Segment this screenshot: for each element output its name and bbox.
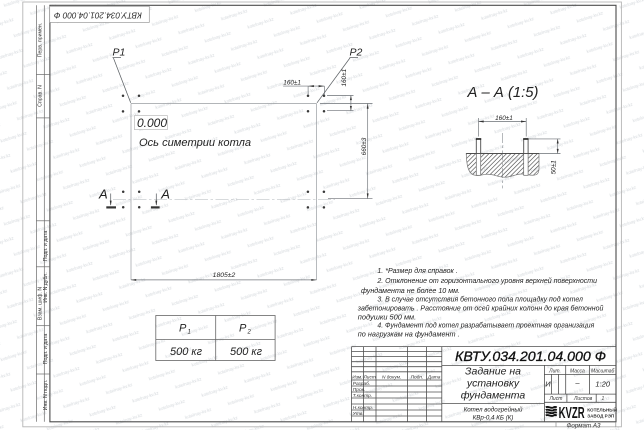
svg-text:1:20: 1:20 (595, 379, 610, 388)
svg-text:Т.контр.: Т.контр. (353, 393, 372, 399)
svg-text:1: 1 (602, 396, 605, 402)
svg-text:50±1: 50±1 (551, 160, 558, 175)
svg-text:Р: Р (179, 323, 187, 335)
svg-text:1. *Размер для справок .: 1. *Размер для справок . (377, 266, 457, 275)
svg-text:660±3: 660±3 (361, 137, 368, 155)
svg-text:0.000: 0.000 (137, 116, 167, 130)
svg-text:N докум.: N докум. (382, 374, 401, 380)
svg-text:И: И (545, 379, 551, 388)
svg-text:Лист: Лист (549, 396, 563, 402)
svg-text:Р1: Р1 (113, 47, 126, 59)
svg-text:КВр-0,4 КБ (К): КВр-0,4 КБ (К) (473, 415, 514, 422)
svg-text:ЗАВОД РЭП: ЗАВОД РЭП (587, 413, 614, 418)
svg-text:КВТУ.034.201.04.000 Ф: КВТУ.034.201.04.000 Ф (455, 349, 606, 364)
svg-text:500 кг: 500 кг (170, 346, 203, 358)
svg-text:KVZR: KVZR (559, 405, 585, 422)
svg-text:Лист: Лист (363, 374, 376, 380)
svg-text:Взам. шиф. N: Взам. шиф. N (37, 287, 43, 320)
svg-text:Ось симетрии котла: Ось симетрии котла (139, 137, 251, 149)
svg-text:Дата: Дата (427, 374, 441, 380)
svg-text:Лит.: Лит. (548, 368, 561, 374)
svg-text:Котел водогрейный: Котел водогрейный (464, 407, 523, 414)
svg-text:Утв.: Утв. (353, 411, 364, 417)
svg-text:500 кг: 500 кг (230, 346, 263, 358)
svg-text:Инв. N дубл.: Инв. N дубл. (43, 272, 49, 302)
svg-text:Задание на: Задание на (465, 366, 521, 378)
svg-text:А: А (160, 186, 170, 201)
svg-text:Справ. N: Справ. N (37, 85, 43, 107)
svg-text:Инв. N подл.: Инв. N подл. (43, 380, 49, 411)
svg-text:Н.контр.: Н.контр. (353, 405, 373, 411)
svg-text:160±1: 160±1 (495, 115, 513, 122)
svg-text:Подп. и дата: Подп. и дата (43, 231, 49, 262)
svg-text:Р2: Р2 (350, 47, 363, 59)
svg-text:Формат А3: Формат А3 (567, 424, 602, 430)
svg-text:2: 2 (247, 330, 252, 336)
svg-text:Масса: Масса (570, 368, 585, 374)
svg-text:установку: установку (466, 377, 520, 389)
svg-text:4. Фундамент под котел раз: 4. Фундамент под котел разрабатывает про… (377, 321, 594, 330)
svg-text:Изм.: Изм. (352, 374, 362, 380)
svg-text:Разраб.: Разраб. (353, 381, 370, 387)
svg-text:А: А (98, 186, 108, 201)
svg-text:КОТЕЛЬНЫЙ: КОТЕЛЬНЫЙ (587, 406, 617, 413)
svg-text:А – А (1:5): А – А (1:5) (466, 85, 538, 101)
svg-text:1805±2: 1805±2 (213, 272, 236, 279)
svg-text:Подп.: Подп. (411, 374, 424, 380)
svg-text:КВТУ.034.201.04.000 Ф: КВТУ.034.201.04.000 Ф (53, 10, 142, 19)
svg-text:3. В случае отсутствия бет: 3. В случае отсутствия бетонного пола пл… (377, 295, 583, 304)
svg-text:Подп. и дата: Подп. и дата (43, 334, 49, 365)
svg-text:160±1: 160±1 (341, 68, 348, 86)
svg-text:Пров.: Пров. (353, 387, 366, 393)
svg-text:1: 1 (188, 330, 191, 336)
svg-text:Р: Р (239, 323, 247, 335)
svg-text:фундамента не более 10 мм.: фундамента не более 10 мм. (361, 286, 460, 295)
svg-text:фундамента: фундамента (461, 390, 526, 402)
svg-text:160±1: 160±1 (283, 80, 301, 87)
svg-text:Масштаб: Масштаб (591, 368, 615, 374)
svg-text:по нагрузкам на фундамент .: по нагрузкам на фундамент . (358, 330, 460, 339)
svg-text:2. Отклонение от горизонтал: 2. Отклонение от горизонтального уровня … (376, 276, 597, 285)
svg-text:–: – (574, 379, 580, 388)
svg-text:Листов: Листов (573, 396, 593, 402)
svg-text:забетонировать . Расстояние: забетонировать . Расстояние от осей край… (357, 304, 604, 313)
svg-text:Перв. примен.: Перв. примен. (37, 23, 43, 58)
